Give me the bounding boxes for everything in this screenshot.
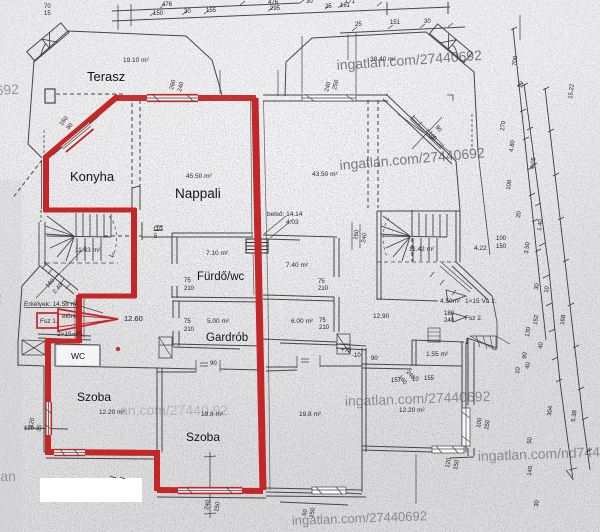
svg-text:30: 30	[424, 19, 431, 25]
svg-text:110: 110	[153, 227, 163, 233]
svg-text:5.00 m²: 5.00 m²	[207, 318, 230, 325]
svg-text:150: 150	[153, 11, 164, 17]
svg-text:210: 210	[319, 325, 330, 331]
svg-text:171: 171	[345, 0, 356, 5]
svg-text:30: 30	[306, 0, 313, 5]
svg-text:25: 25	[355, 22, 362, 28]
svg-text:75: 75	[184, 278, 191, 284]
svg-text:1×15 Vá 2.: 1×15 Vá 2.	[465, 298, 497, 305]
svg-text:Erkélyek: 14.58 m²: Erkélyek: 14.58 m²	[24, 301, 79, 308]
svg-text:12.20 m²: 12.20 m²	[99, 409, 125, 416]
svg-text:155: 155	[424, 376, 435, 382]
svg-text:1.55 m²: 1.55 m²	[426, 351, 449, 358]
svg-text:12.60: 12.60	[124, 314, 143, 323]
svg-text:476: 476	[268, 0, 279, 6]
svg-text:90: 90	[210, 361, 217, 367]
svg-text:+75: +75	[341, 348, 352, 354]
svg-text:Nappali: Nappali	[175, 186, 221, 201]
svg-text:Terasz: Terasz	[87, 69, 125, 84]
svg-text:Gardrób: Gardrób	[206, 332, 248, 344]
svg-text:19.8 m²: 19.8 m²	[201, 411, 224, 418]
svg-text:30: 30	[184, 9, 191, 15]
svg-text:240: 240	[444, 318, 455, 324]
svg-text:11.43 m²: 11.43 m²	[75, 247, 101, 254]
svg-text:Szoba: Szoba	[77, 390, 111, 404]
svg-text:4.22: 4.22	[474, 245, 487, 252]
svg-text:Fsz 2.: Fsz 2.	[465, 315, 483, 322]
svg-text:7.40 m²: 7.40 m²	[286, 262, 309, 269]
svg-text:43.50 m²: 43.50 m²	[312, 171, 338, 178]
svg-text:4.03: 4.03	[286, 219, 299, 226]
svg-text:15: 15	[44, 11, 51, 17]
svg-text:12,90: 12,90	[373, 313, 390, 320]
svg-text:70: 70	[44, 4, 51, 10]
svg-text:7.10 m²: 7.10 m²	[206, 250, 229, 257]
svg-text:előre: előre	[62, 313, 77, 320]
svg-text:295: 295	[270, 6, 281, 12]
svg-text:75: 75	[318, 279, 325, 285]
svg-text:19.10 m²: 19.10 m²	[123, 57, 149, 64]
svg-text:WC: WC	[71, 351, 85, 361]
svg-text:210: 210	[318, 286, 329, 292]
svg-text:75: 75	[319, 318, 326, 324]
svg-text:210: 210	[184, 286, 195, 292]
svg-text:75: 75	[184, 319, 191, 325]
svg-text:45.50 m²: 45.50 m²	[186, 173, 212, 180]
svg-text:4.50m²: 4.50m²	[440, 298, 461, 305]
svg-text:19.8 m²: 19.8 m²	[299, 411, 322, 418]
svg-text:0692: 0692	[0, 81, 20, 99]
svg-text:Fürdő/wc: Fürdő/wc	[197, 271, 245, 283]
svg-text:belső: 14.14: belső: 14.14	[267, 211, 303, 218]
svg-text:120: 120	[24, 426, 35, 432]
svg-text:92: 92	[0, 290, 2, 306]
svg-text:180: 180	[444, 311, 455, 317]
svg-text:155: 155	[206, 8, 217, 14]
svg-text:Fsz 1.: Fsz 1.	[40, 318, 58, 325]
svg-text:150: 150	[496, 244, 507, 250]
svg-text:2×15=45: 2×15=45	[57, 331, 83, 338]
svg-text:151: 151	[390, 20, 401, 26]
svg-text:6.00 m²: 6.00 m²	[291, 318, 314, 325]
svg-text:90: 90	[371, 356, 378, 362]
svg-text:ngatlan: ngatlan	[0, 468, 16, 484]
svg-text:-10: -10	[352, 353, 361, 359]
svg-text:476: 476	[162, 2, 173, 8]
svg-text:Szoba: Szoba	[186, 430, 220, 444]
svg-text:12.20 m²: 12.20 m²	[399, 407, 425, 414]
svg-text:11.42 m²: 11.42 m²	[409, 246, 435, 253]
svg-text:38.40 m²: 38.40 m²	[370, 56, 396, 63]
svg-text:25: 25	[325, 4, 332, 10]
svg-text:Konyha: Konyha	[70, 169, 115, 184]
svg-text:100: 100	[496, 236, 507, 242]
svg-text:210: 210	[184, 327, 195, 333]
